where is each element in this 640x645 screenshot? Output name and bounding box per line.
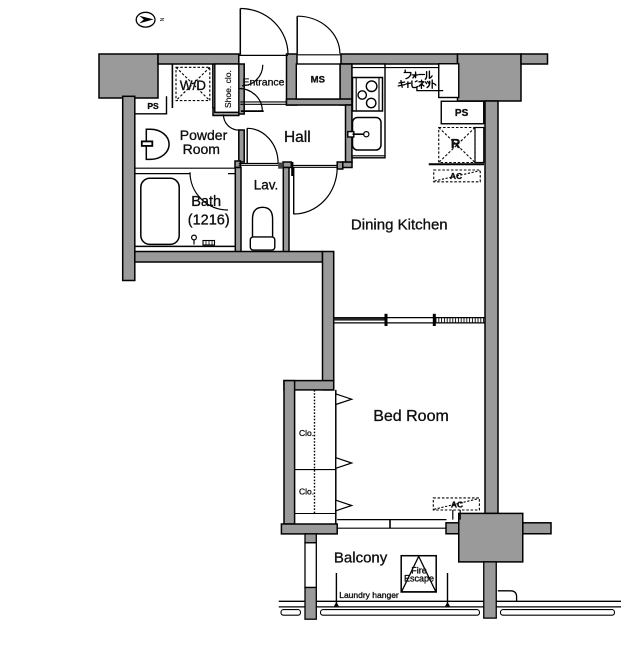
svg-text:Lav.: Lav.: [254, 177, 279, 192]
svg-text:Room: Room: [183, 141, 220, 157]
svg-text:R: R: [451, 136, 461, 151]
svg-text:Shoe. clo.: Shoe. clo.: [223, 70, 233, 108]
svg-text:Bed Room: Bed Room: [373, 408, 449, 425]
svg-text:Escape: Escape: [404, 574, 434, 584]
svg-text:Dining Kitchen: Dining Kitchen: [351, 217, 448, 234]
svg-text:Balcony: Balcony: [334, 549, 388, 566]
svg-text:W/D: W/D: [180, 78, 206, 93]
svg-text:Hall: Hall: [284, 129, 311, 146]
svg-text:AC: AC: [450, 171, 462, 181]
svg-text:Clo.: Clo.: [299, 487, 314, 497]
svg-text:Clo.: Clo.: [299, 428, 314, 438]
svg-text:MS: MS: [311, 74, 325, 85]
svg-text:Bath: Bath: [191, 194, 221, 210]
svg-text:N: N: [158, 18, 164, 22]
svg-text:AC: AC: [451, 500, 463, 510]
svg-text:PS: PS: [455, 108, 469, 119]
svg-text:(1216): (1216): [188, 213, 230, 229]
svg-text:Laundry hanger: Laundry hanger: [339, 590, 399, 600]
svg-text:PS: PS: [147, 101, 159, 111]
svg-text:Entrance: Entrance: [242, 76, 284, 88]
